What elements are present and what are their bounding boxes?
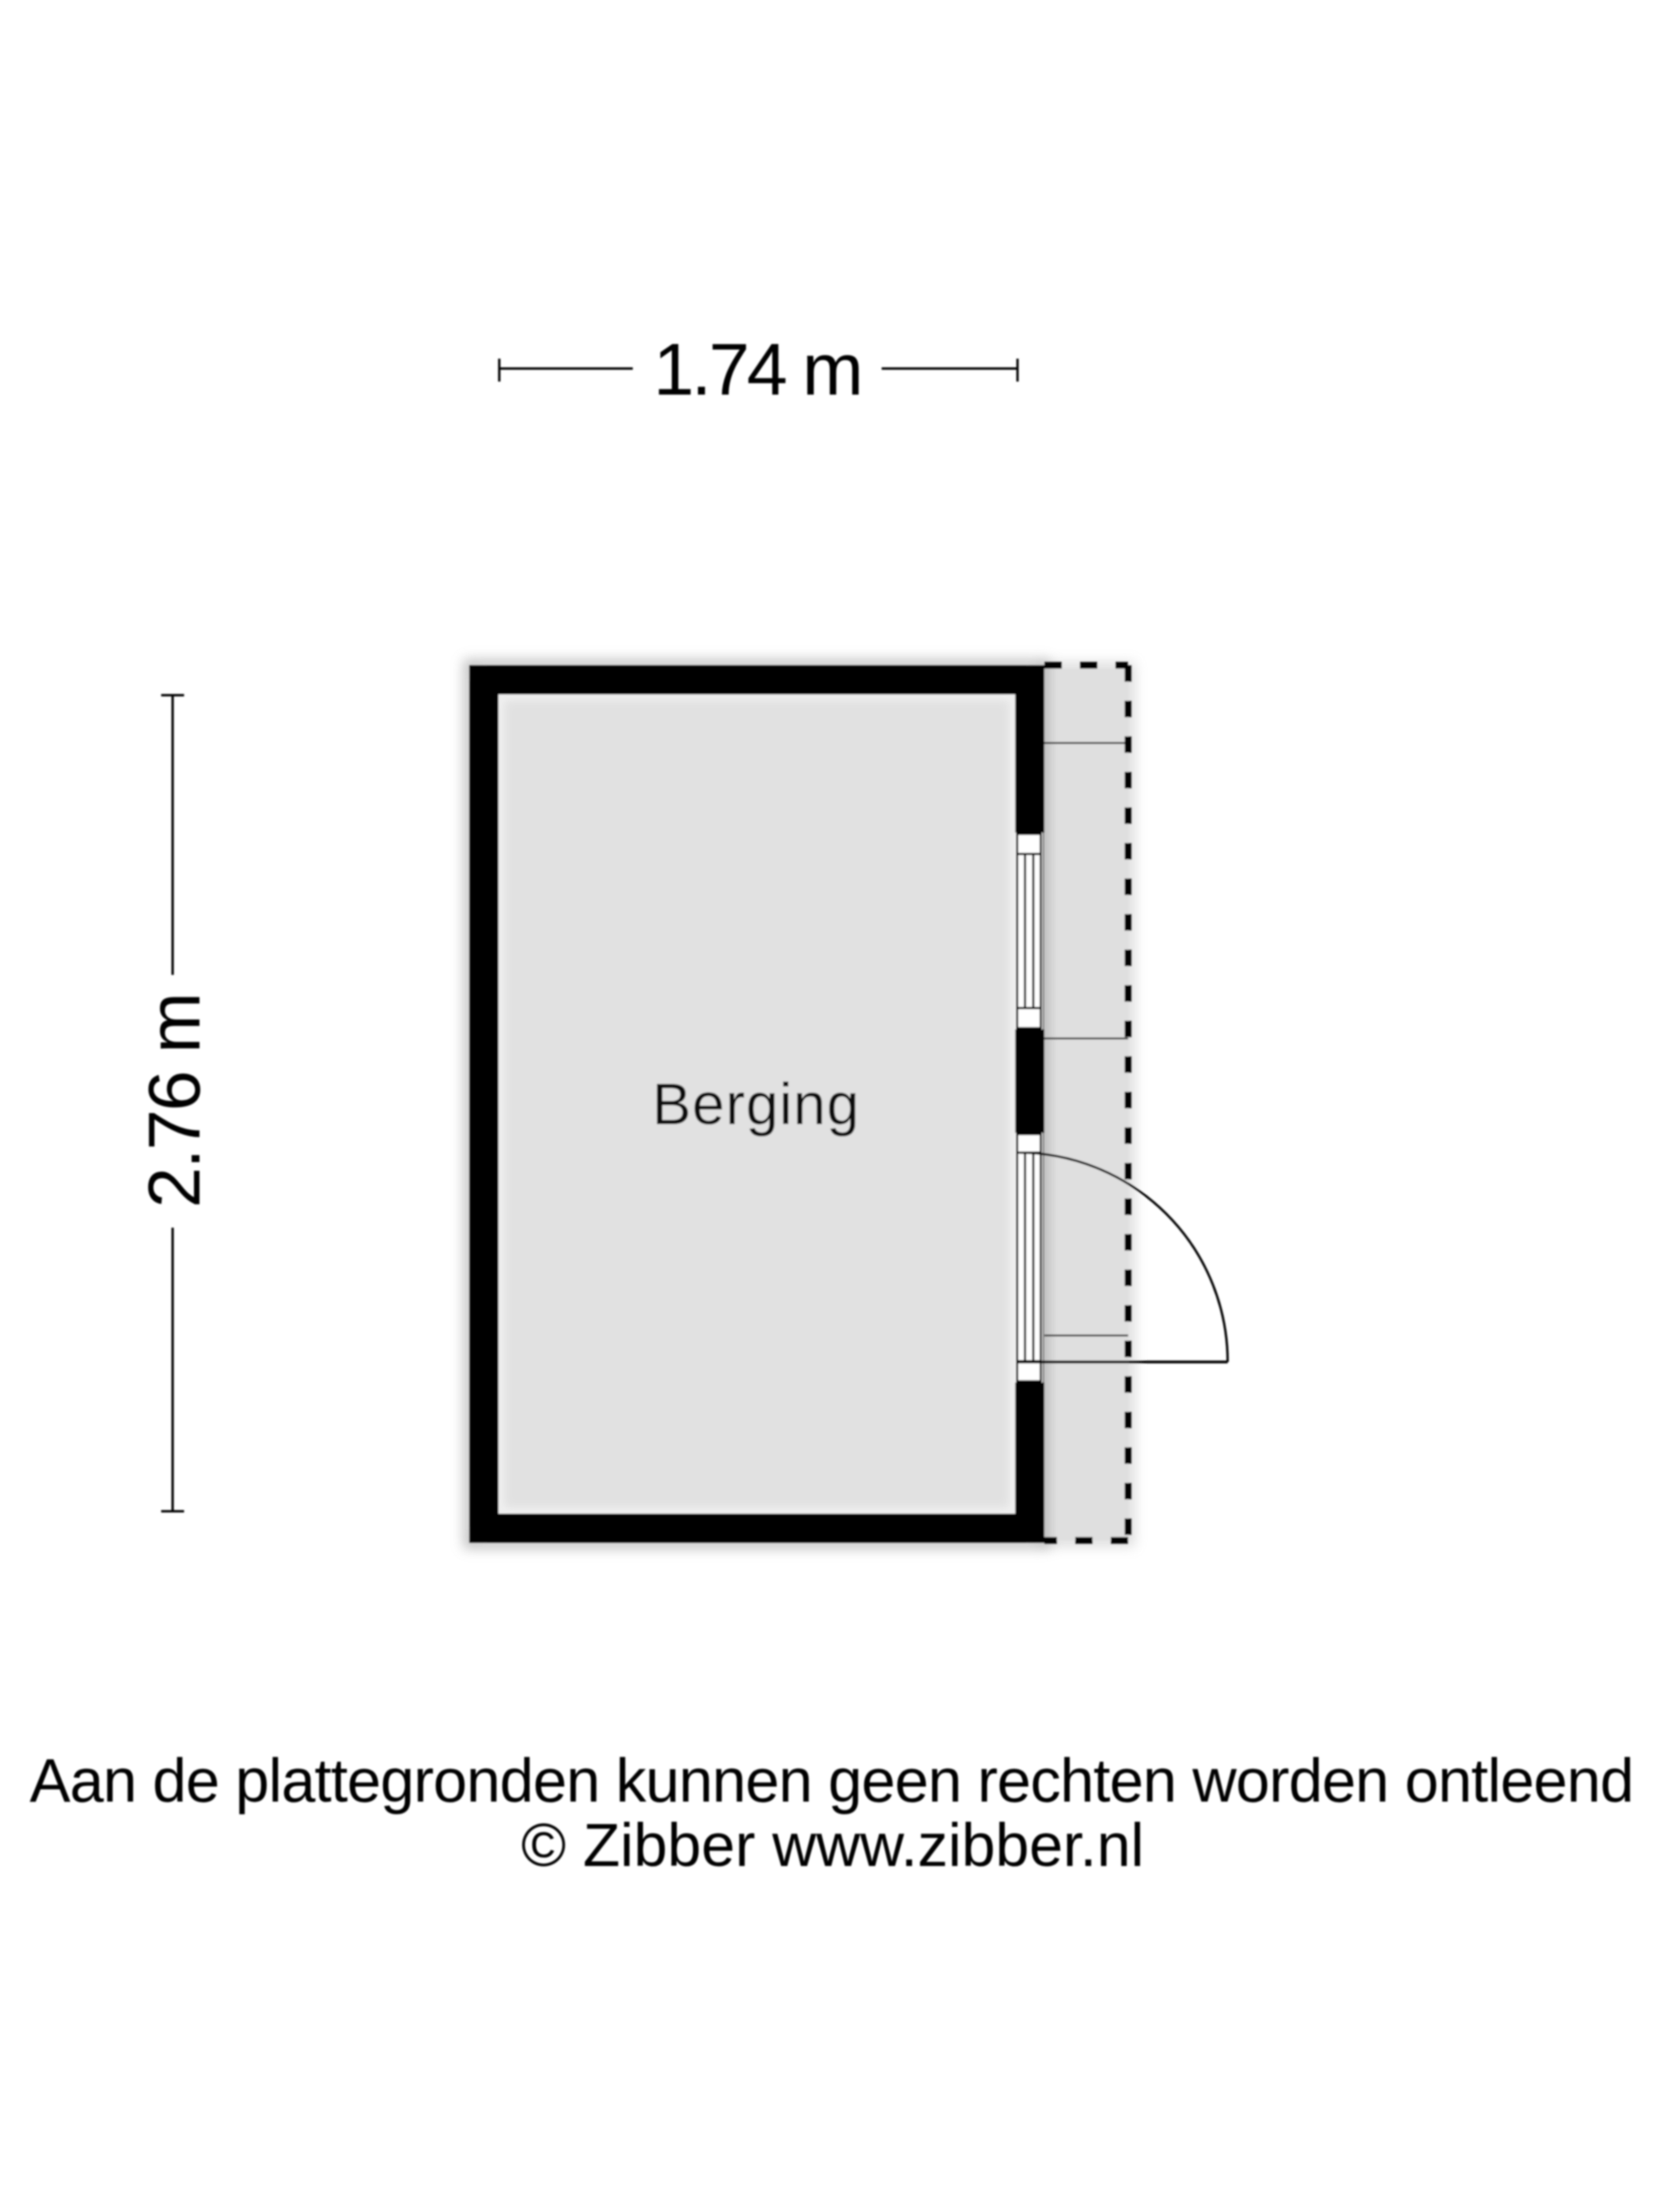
svg-text:2.76 m: 2.76 m: [134, 992, 216, 1208]
svg-text:© Zibber www.zibber.nl: © Zibber www.zibber.nl: [521, 1811, 1145, 1879]
svg-text:1.74 m: 1.74 m: [653, 329, 863, 411]
svg-text:Berging: Berging: [653, 1071, 860, 1137]
svg-text:Aan de plattegronden kunnen ge: Aan de plattegronden kunnen geen rechten…: [30, 1747, 1635, 1815]
